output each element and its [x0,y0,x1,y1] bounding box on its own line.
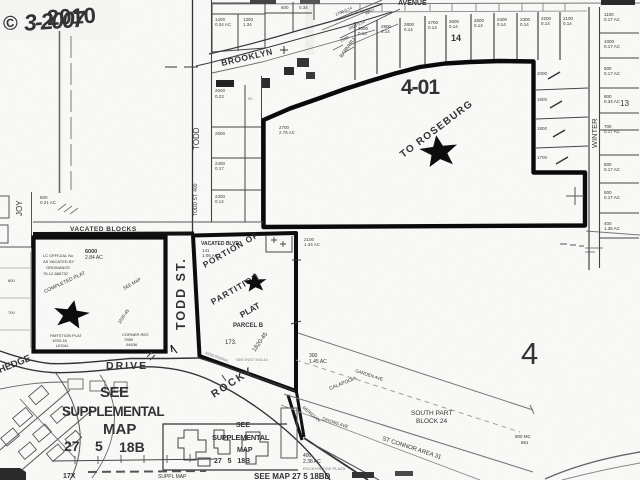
svg-text:0.14: 0.14 [520,22,529,27]
svg-text:SOUTH PART: SOUTH PART [411,410,452,417]
svg-text:SUPPLEMENTAL: SUPPLEMENTAL [62,404,164,419]
svg-text:ORDINANCE: ORDINANCE [46,265,70,270]
svg-text:0.34 AC: 0.34 AC [215,22,232,27]
svg-text:TODD ST. 400: TODD ST. 400 [193,183,199,216]
svg-text:4-01: 4-01 [401,76,440,99]
svg-text:SEE MAP 27 5 18BD: SEE MAP 27 5 18BD [254,472,331,480]
svg-text:0.17 AC: 0.17 AC [604,17,621,22]
svg-text:1.34 AC: 1.34 AC [304,242,321,247]
svg-text:2.84 AC: 2.84 AC [85,255,103,261]
svg-text:0.17 AC: 0.17 AC [604,44,621,49]
svg-text:0.14: 0.14 [404,27,413,32]
svg-text:1700: 1700 [537,155,548,160]
svg-text:0.23: 0.23 [215,94,224,99]
svg-text:04636: 04636 [126,342,138,347]
svg-text:3-2007: 3-2007 [23,5,87,35]
svg-text:SEE: SEE [100,384,129,401]
svg-text:0.14: 0.14 [474,23,483,28]
svg-text:0.14: 0.14 [428,25,437,30]
svg-text:0.17 AC: 0.17 AC [604,129,621,134]
svg-text:0.34 AC: 0.34 AC [604,99,621,104]
svg-text:14: 14 [451,33,461,43]
svg-text:861: 861 [521,440,529,445]
svg-text:0.17 AC: 0.17 AC [604,167,621,172]
svg-text:2500: 2500 [215,131,226,136]
svg-text:27: 27 [64,438,80,454]
svg-text:2000: 2000 [537,71,548,76]
svg-text:JOY: JOY [15,200,24,216]
svg-text:1.36 AC: 1.36 AC [604,226,621,231]
svg-text:600: 600 [281,5,289,10]
svg-text:SUPPLEMENTAL: SUPPLEMENTAL [212,433,270,442]
svg-text:0.14: 0.14 [563,21,572,26]
svg-text:AVENUE: AVENUE [398,0,427,7]
svg-text:2600: 2600 [215,88,226,93]
svg-text:SEE INST 943-44: SEE INST 943-44 [236,357,268,362]
svg-text:1800: 1800 [537,126,548,131]
svg-text:0.21 AC: 0.21 AC [40,200,57,205]
svg-text:27 5 18B: 27 5 18B [214,458,250,465]
svg-text:173.: 173. [225,340,237,346]
svg-text:ROCKYHEDGE PLAZA: ROCKYHEDGE PLAZA [303,466,346,471]
svg-text:0.14: 0.14 [358,31,367,36]
svg-text:PARCEL B: PARCEL B [233,323,264,329]
svg-text:2.76 AC: 2.76 AC [279,130,296,135]
svg-text:0.34: 0.34 [299,5,308,10]
svg-text:SEE: SEE [236,422,250,429]
svg-text:TODD: TODD [192,127,201,150]
svg-text:2.38 AC: 2.38 AC [303,459,321,465]
svg-text:LEGAL: LEGAL [56,343,70,348]
svg-text:SUPPL MAP: SUPPL MAP [158,474,187,480]
svg-text:MAP: MAP [103,421,136,438]
svg-text:0.17 AC: 0.17 AC [604,71,621,76]
svg-text:LC OFFICIAL No: LC OFFICIAL No [43,253,74,258]
svg-text:0.14: 0.14 [497,22,506,27]
svg-text:0.17: 0.17 [215,166,224,171]
svg-text:BLOCK 24: BLOCK 24 [416,418,447,425]
svg-text:800: 800 [8,278,15,283]
svg-text:90: 90 [248,96,253,101]
svg-text:1.34: 1.34 [243,22,252,27]
svg-text:DRIVE: DRIVE [106,360,148,372]
svg-text:WINTER: WINTER [590,118,599,148]
svg-text:17X: 17X [63,473,76,480]
svg-text:0.14: 0.14 [215,199,224,204]
svg-text:800 MC: 800 MC [515,434,532,439]
svg-text:0.14: 0.14 [449,24,458,29]
svg-text:0.14: 0.14 [381,29,390,34]
svg-text:TODD ST.: TODD ST. [174,257,188,330]
svg-text:1900: 1900 [537,97,548,102]
svg-text:©: © [2,12,18,35]
svg-text:78-12-686732: 78-12-686732 [43,271,69,276]
svg-text:700: 700 [8,310,15,315]
svg-text:MAP: MAP [237,447,253,454]
svg-text:5: 5 [95,438,103,454]
svg-text:13: 13 [620,99,629,108]
svg-text:0.17 AC: 0.17 AC [604,195,621,200]
svg-text:18B: 18B [119,439,145,455]
svg-text:0.14: 0.14 [541,21,550,26]
svg-text:1.45 AC: 1.45 AC [309,359,327,365]
svg-text:4: 4 [521,336,538,371]
svg-text:AS VACATED BY: AS VACATED BY [43,259,75,264]
